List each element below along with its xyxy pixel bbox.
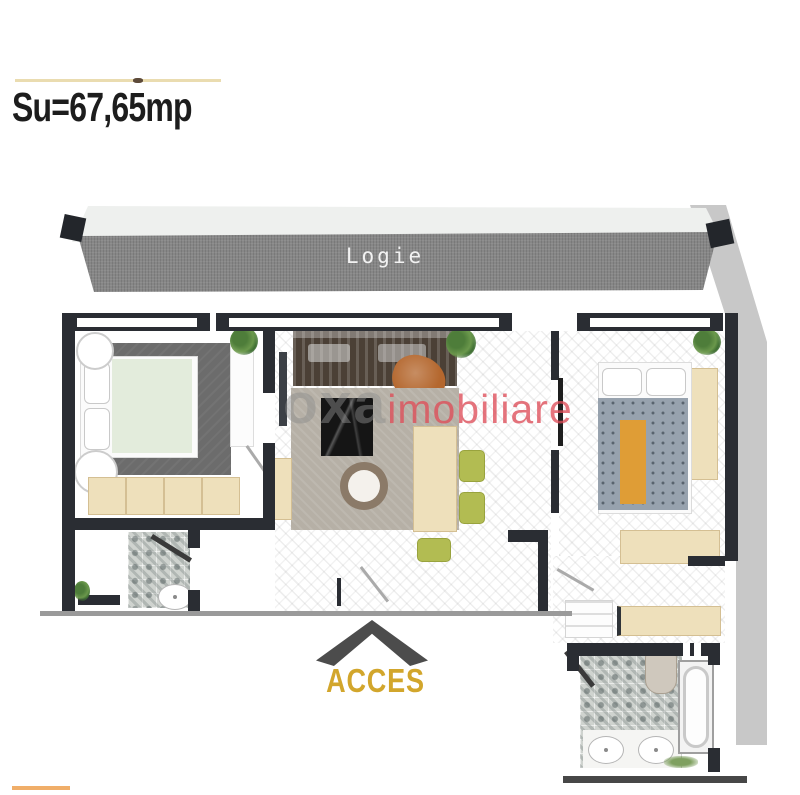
bedroom-2-bench <box>690 368 718 480</box>
hallway-steps <box>565 600 613 638</box>
interior-wall <box>688 556 725 566</box>
bed-runner <box>620 420 646 504</box>
access-arrow-icon <box>316 620 428 666</box>
hallway-desk <box>617 606 721 636</box>
interior-wall <box>551 331 559 380</box>
loggia-label: Logie <box>235 244 535 268</box>
interior-wall <box>538 530 548 615</box>
bedroom-1-desk <box>230 343 254 447</box>
dining-chair <box>417 538 451 562</box>
bath-plant-icon <box>664 756 698 768</box>
living-pouf <box>340 462 388 510</box>
header-underline <box>15 79 221 82</box>
watermark-brand-suffix: imobiliare <box>387 389 572 430</box>
loggia: Logie <box>58 198 748 304</box>
wall-notch <box>694 643 701 656</box>
window-wall <box>577 313 723 331</box>
dining-chair <box>459 450 485 482</box>
kitchen-counter-item <box>308 344 350 362</box>
interior-wall <box>263 331 275 393</box>
bedroom-1-pillow <box>84 408 110 450</box>
plant-icon <box>446 328 476 358</box>
exterior-wall-right <box>725 313 738 561</box>
bathroom-2-bottom-wall <box>563 776 747 783</box>
watermark-brand: oxa <box>283 376 387 433</box>
bathroom-1-sink <box>158 584 192 610</box>
lower-boundary-wall <box>40 611 572 616</box>
wall-notch <box>683 643 690 656</box>
corner-mark <box>12 786 70 790</box>
toilet <box>645 650 677 694</box>
watermark: oxaimobiliare <box>283 376 573 433</box>
interior-wall <box>62 518 275 530</box>
floor-plan-canvas: Su=67,65mp Logie <box>0 0 800 795</box>
bedroom-1-armchair <box>76 332 114 370</box>
interior-wall <box>263 443 275 527</box>
bathtub-basin <box>683 666 709 748</box>
dining-chair <box>459 492 485 524</box>
header-underline-dot <box>133 78 143 83</box>
plant-icon <box>693 329 721 355</box>
bathroom-2-wall <box>708 643 720 665</box>
bathroom-2-wall <box>567 643 579 671</box>
loggia-wall-stub-right <box>706 219 735 248</box>
bathtub <box>678 660 714 754</box>
window-wall <box>64 313 210 331</box>
bathroom-2-wall <box>708 748 720 772</box>
dining-table <box>413 426 457 532</box>
plant-icon <box>230 327 258 355</box>
interior-wall <box>551 450 559 513</box>
interior-wall <box>188 590 200 612</box>
window-wall <box>216 313 512 331</box>
bedroom-2-pillow <box>602 368 642 396</box>
bedroom-1-blanket <box>112 359 192 453</box>
bedroom-1-wardrobe <box>88 477 240 515</box>
access-label: ACCES <box>326 662 418 700</box>
exterior-wall-left <box>62 313 75 614</box>
bedroom-2-pillow <box>646 368 686 396</box>
surface-area-label: Su=67,65mp <box>12 84 192 131</box>
entrance-door-jamb <box>337 578 341 606</box>
plant-icon <box>74 581 90 601</box>
interior-wall <box>188 530 200 548</box>
bathroom-2-sink <box>588 736 624 764</box>
